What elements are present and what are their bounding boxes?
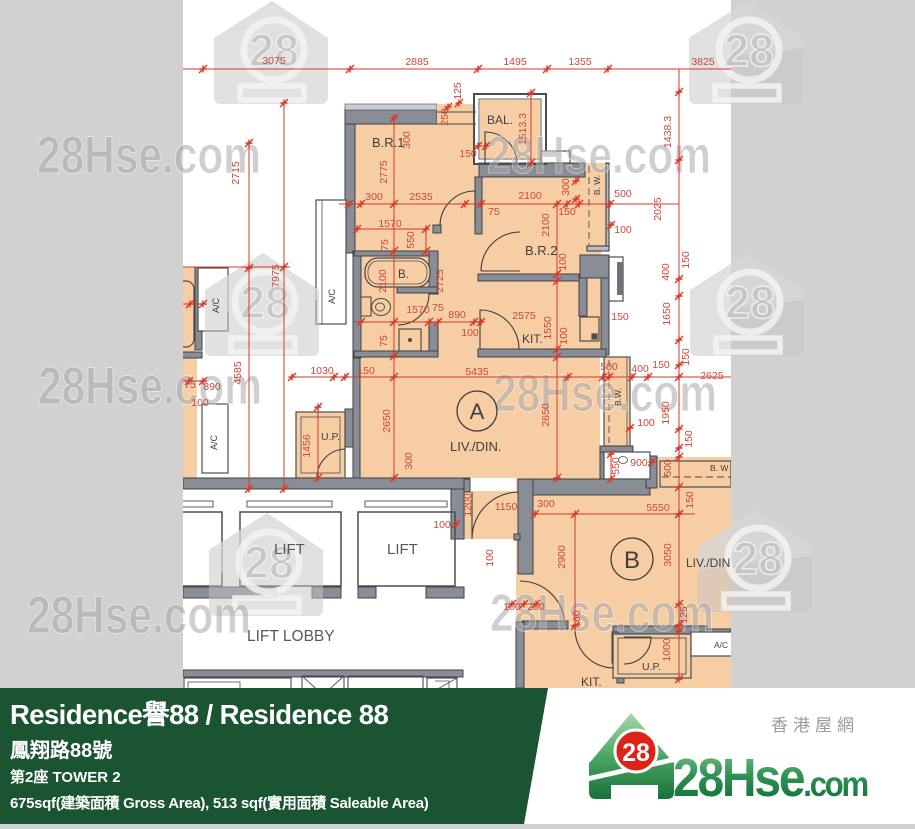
- svg-text:2535: 2535: [409, 191, 433, 203]
- svg-text:160: 160: [571, 610, 583, 628]
- svg-text:1030: 1030: [310, 365, 334, 377]
- svg-text:150: 150: [680, 348, 692, 366]
- svg-text:150: 150: [652, 359, 670, 371]
- svg-text:2100: 2100: [377, 269, 389, 293]
- svg-text:BAL.: BAL.: [487, 113, 513, 127]
- svg-text:500: 500: [662, 459, 674, 477]
- svg-text:28: 28: [622, 739, 650, 767]
- svg-text:400: 400: [631, 363, 649, 375]
- svg-text:100: 100: [461, 327, 479, 339]
- svg-text:KIT.: KIT.: [522, 332, 543, 346]
- svg-text:150: 150: [680, 251, 692, 269]
- svg-text:1000: 1000: [661, 638, 673, 662]
- svg-text:Residence譽88 / Residence 88: Residence譽88 / Residence 88: [10, 699, 388, 730]
- svg-text:75: 75: [432, 302, 444, 314]
- svg-text:100: 100: [614, 224, 632, 236]
- svg-text:2775: 2775: [378, 160, 390, 184]
- svg-text:A/C: A/C: [714, 640, 728, 650]
- svg-text:香港屋網: 香港屋網: [771, 716, 859, 735]
- svg-text:1550: 1550: [542, 316, 554, 340]
- svg-text:LIV./DIN: LIV./DIN: [686, 556, 730, 570]
- svg-text:5550: 5550: [646, 502, 670, 514]
- svg-text:100: 100: [503, 601, 521, 613]
- svg-text:300: 300: [403, 452, 415, 470]
- svg-text:B.R.2: B.R.2: [525, 243, 558, 258]
- svg-text:28Hse.com: 28Hse.com: [37, 126, 261, 185]
- svg-text:1570: 1570: [406, 304, 430, 316]
- svg-text:100: 100: [433, 519, 451, 531]
- svg-text:B.: B.: [398, 269, 409, 281]
- svg-text:5435: 5435: [465, 366, 489, 378]
- svg-text:28Hse.com: 28Hse.com: [38, 357, 262, 416]
- svg-text:3075: 3075: [262, 55, 286, 67]
- svg-text:B. W.: B. W.: [592, 175, 602, 195]
- svg-text:550: 550: [610, 457, 622, 475]
- svg-text:500: 500: [614, 188, 632, 200]
- svg-text:A/C: A/C: [327, 288, 337, 304]
- svg-text:KIT.: KIT.: [581, 675, 602, 689]
- svg-text:B.R.1: B.R.1: [372, 135, 405, 150]
- svg-text:100: 100: [191, 397, 209, 409]
- svg-text:550: 550: [405, 231, 417, 249]
- svg-text:B.W.: B.W.: [613, 388, 623, 406]
- svg-text:125: 125: [452, 82, 464, 100]
- svg-text:2650: 2650: [381, 409, 393, 433]
- svg-text:LIFT: LIFT: [274, 541, 305, 558]
- svg-text:1513.3: 1513.3: [517, 113, 529, 145]
- svg-text:1150: 1150: [495, 501, 518, 513]
- svg-text:2715: 2715: [230, 161, 242, 185]
- svg-text:2900: 2900: [556, 545, 568, 569]
- svg-text:1200: 1200: [462, 493, 474, 517]
- svg-text:2100: 2100: [518, 190, 542, 202]
- svg-text:200: 200: [527, 601, 545, 613]
- svg-text:150: 150: [558, 206, 576, 218]
- svg-text:U.P.: U.P.: [642, 661, 661, 673]
- svg-text:890: 890: [203, 381, 221, 393]
- svg-text:300: 300: [365, 191, 383, 203]
- svg-text:2650: 2650: [540, 403, 552, 427]
- svg-text:100: 100: [558, 327, 570, 345]
- svg-text:U.P.: U.P.: [321, 431, 340, 443]
- svg-text:7975: 7975: [270, 264, 282, 288]
- svg-text:150: 150: [459, 148, 477, 160]
- svg-text:1495: 1495: [503, 56, 527, 68]
- svg-text:1355: 1355: [568, 56, 592, 68]
- svg-text:300: 300: [537, 498, 555, 510]
- svg-text:75: 75: [488, 206, 500, 218]
- svg-text:100: 100: [484, 549, 496, 567]
- svg-text:A/C: A/C: [209, 434, 219, 450]
- svg-text:150: 150: [684, 491, 696, 509]
- svg-text:75: 75: [184, 379, 196, 391]
- svg-text:LIV./DIN.: LIV./DIN.: [450, 439, 502, 454]
- svg-text:4585: 4585: [232, 361, 244, 385]
- svg-text:75: 75: [378, 335, 390, 347]
- svg-text:2625: 2625: [700, 370, 724, 382]
- svg-text:500: 500: [600, 361, 618, 373]
- svg-text:1570: 1570: [378, 218, 402, 230]
- svg-text:1456: 1456: [301, 434, 313, 458]
- svg-text:1438.3: 1438.3: [662, 116, 674, 148]
- svg-text:150: 150: [611, 311, 629, 323]
- svg-text:B. W: B. W: [710, 463, 728, 473]
- svg-text:100: 100: [557, 253, 569, 271]
- svg-text:400: 400: [660, 263, 672, 281]
- svg-text:150: 150: [683, 430, 695, 448]
- svg-text:LIFT LOBBY: LIFT LOBBY: [247, 628, 335, 645]
- svg-text:100: 100: [637, 417, 655, 429]
- svg-text:A/C: A/C: [211, 297, 221, 313]
- svg-text:900: 900: [630, 457, 648, 469]
- svg-text:2100: 2100: [540, 213, 552, 237]
- svg-text:1650: 1650: [661, 302, 673, 326]
- svg-text:3050: 3050: [662, 543, 674, 567]
- svg-text:250: 250: [439, 108, 451, 126]
- svg-text:675sqf(建築面積 Gross Area), 513 s: 675sqf(建築面積 Gross Area), 513 sqf(實用面積 Sa…: [10, 794, 429, 812]
- svg-text:LIFT: LIFT: [387, 541, 418, 558]
- svg-text:75: 75: [379, 239, 391, 251]
- svg-text:A: A: [470, 399, 485, 424]
- svg-text:B: B: [624, 547, 640, 574]
- svg-text:300: 300: [560, 178, 572, 196]
- svg-text:890: 890: [448, 309, 466, 321]
- svg-text:2725: 2725: [434, 269, 446, 293]
- svg-text:28Hse.com: 28Hse.com: [27, 586, 251, 645]
- svg-text:150: 150: [357, 365, 375, 377]
- svg-text:125: 125: [678, 606, 690, 624]
- svg-text:3825: 3825: [691, 56, 715, 68]
- svg-text:2575: 2575: [512, 310, 536, 322]
- svg-text:1950: 1950: [660, 401, 672, 425]
- svg-text:2885: 2885: [405, 56, 429, 68]
- svg-text:2025: 2025: [652, 197, 664, 221]
- svg-text:鳳翔路88號: 鳳翔路88號: [10, 738, 112, 762]
- svg-text:第2座 TOWER 2: 第2座 TOWER 2: [10, 768, 121, 786]
